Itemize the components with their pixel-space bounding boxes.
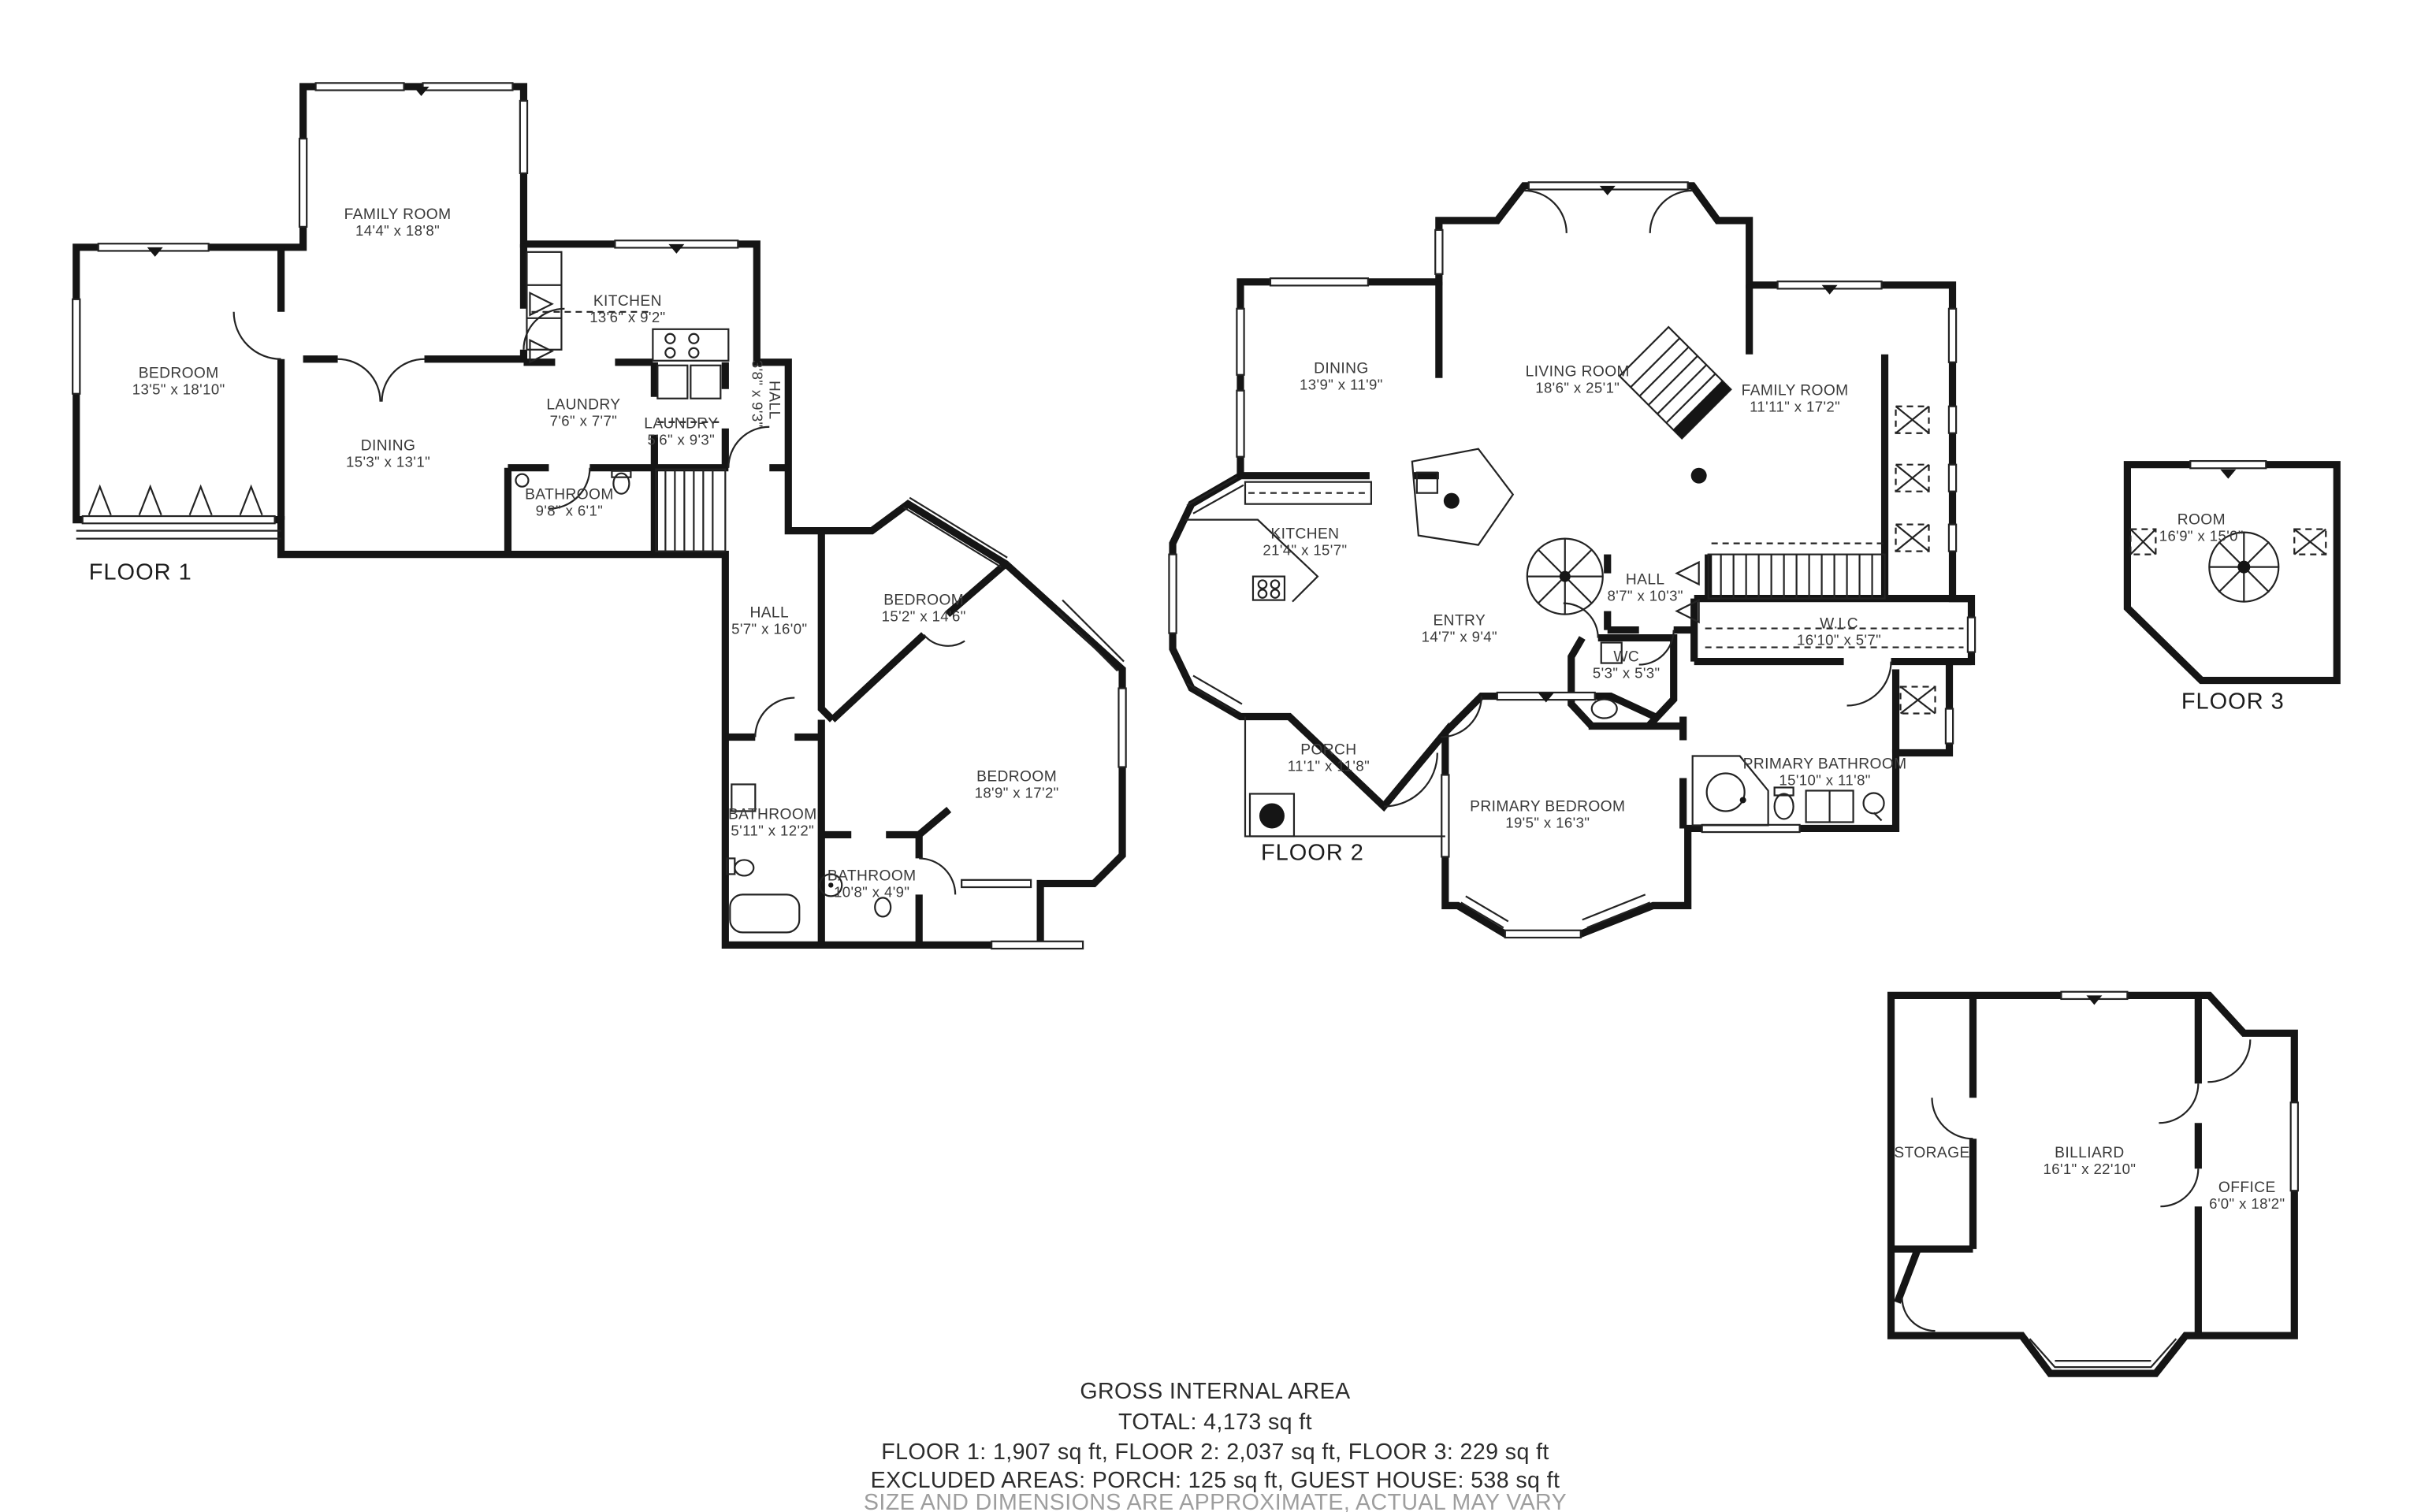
room-dims-kitchen2: 21'4" x 15'7" [1263, 542, 1347, 559]
bathtub-icon [730, 894, 799, 932]
room-label-kitchen: KITCHEN [593, 293, 662, 310]
room-dims-bedroom-c: 18'9" x 17'2" [975, 784, 1059, 801]
vanity-icon [1806, 790, 1854, 822]
staircase-icon [656, 470, 725, 552]
room-label-bathroom-a: BATHROOM [525, 487, 614, 503]
room-dims-family-room2: 11'11" x 17'2" [1750, 399, 1840, 415]
room-label-laundry-b: LAUNDRY [644, 416, 718, 433]
staircase-icon [1709, 544, 1885, 599]
round-sink-icon [1864, 793, 1884, 820]
room-label-wc: WC [1613, 649, 1639, 666]
guest-house-plan: STORAGE BILLIARD 16'1" x 22'10" OFFICE 6… [1891, 992, 2298, 1373]
room-dims-dining2: 13'9" x 11'9" [1300, 377, 1383, 393]
room-label-dining2: DINING [1314, 361, 1369, 377]
room-dims-bathroom-c: 10'8" x 4'9" [834, 883, 909, 900]
summary-floor-areas: FLOOR 1: 1,907 sq ft, FLOOR 2: 2,037 sq … [881, 1440, 1549, 1465]
closet-zigzag-icon [89, 487, 262, 515]
toilet-icon [612, 471, 630, 494]
room-dims-primary-bedroom: 19'5" x 16'3" [1505, 814, 1590, 830]
floor3-title: FLOOR 3 [2181, 689, 2285, 715]
stove-icon [653, 329, 728, 361]
room-dims-office: 6'0" x 18'2" [2209, 1195, 2285, 1212]
room-label-bathroom-b: BATHROOM [728, 806, 817, 823]
stove-icon [1253, 577, 1285, 600]
room-label-hall-b: HALL [749, 605, 789, 622]
sink-icon [515, 474, 528, 487]
room-dims-hall2: 8'7" x 10'3" [1608, 588, 1683, 604]
room-label-bedroom-c: BEDROOM [976, 768, 1057, 785]
kitchen-island-icon [1412, 449, 1513, 545]
room-label-living-room: LIVING ROOM [1526, 364, 1630, 381]
room-label-laundry-a: LAUNDRY [546, 397, 620, 414]
summary-disclaimer: SIZE AND DIMENSIONS ARE APPROXIMATE, ACT… [864, 1490, 1567, 1512]
washer-dryer-icon [657, 366, 720, 399]
toilet-icon [727, 858, 753, 875]
bay-window [2029, 1339, 2176, 1367]
room-dims-hall-a: 3'8" x 9'3" [749, 360, 765, 428]
floor1-title: FLOOR 1 [89, 560, 192, 585]
room-dims-bathroom-b: 5'11" x 12'2" [731, 822, 814, 838]
room-dims-laundry-a: 7'6" x 7'7" [550, 413, 618, 429]
room-label-room3: ROOM [2177, 512, 2226, 529]
room-label-family-room: FAMILY ROOM [344, 206, 452, 223]
room-label-wic: W.I.C [1820, 616, 1858, 633]
room-dims-family-room: 14'4" x 18'8" [355, 222, 440, 239]
floor3-outer-walls [2127, 465, 2337, 681]
room-label-bathroom-c: BATHROOM [827, 867, 917, 884]
room-dims-primary-bathroom: 15'10" x 11'8" [1779, 771, 1870, 788]
room-label-dining: DINING [361, 438, 416, 455]
room-dims-hall-b: 5'7" x 16'0" [731, 621, 807, 637]
room-label-bedroom-a: BEDROOM [139, 366, 219, 382]
toilet-icon [1775, 787, 1794, 819]
room-label-family-room2: FAMILY ROOM [1742, 383, 1849, 399]
room-label-entry: ENTRY [1433, 613, 1486, 630]
bifold-door-icon [530, 293, 552, 362]
room-dims-porch: 11'1" x 11'8" [1288, 757, 1370, 774]
toilet-icon [875, 897, 891, 916]
room-dims-billiard: 16'1" x 22'10" [2044, 1161, 2137, 1177]
room-dims-laundry-b: 5'6" x 9'3" [648, 432, 716, 448]
floor2-plan: DINING 13'9" x 11'9" LIVING ROOM 18'6" x… [1169, 182, 1975, 938]
room-label-hall2: HALL [1626, 572, 1665, 589]
room-dims-entry: 14'7" x 9'4" [1422, 629, 1497, 645]
room-label-porch: PORCH [1300, 742, 1356, 759]
floor3-windows [2190, 461, 2266, 479]
guest-house-room-labels: STORAGE BILLIARD 16'1" x 22'10" OFFICE 6… [1894, 1145, 2285, 1212]
room-dims-dining: 15'3" x 13'1" [346, 454, 430, 470]
floor1-plan: FAMILY ROOM 14'4" x 18'8" BEDROOM 13'5" … [73, 83, 1126, 949]
room-dims-living-room: 18'6" x 25'1" [1535, 380, 1620, 396]
room-label-bedroom-b: BEDROOM [883, 593, 964, 609]
room-dims-wic: 16'10" x 5'7" [1797, 632, 1881, 648]
room-label-office: OFFICE [2218, 1180, 2276, 1196]
room-label-primary-bedroom: PRIMARY BEDROOM [1470, 798, 1625, 815]
room-dims-bedroom-a: 13'5" x 18'10" [132, 381, 225, 398]
room-dims-bathroom-a: 9'8" x 6'1" [536, 503, 604, 519]
room-dims-room3: 16'9" x 15'0" [2159, 528, 2244, 544]
corner-fireplace-stair-icon [1620, 327, 1731, 438]
room-label-primary-bathroom: PRIMARY BATHROOM [1743, 756, 1907, 772]
room-label-storage: STORAGE [1894, 1145, 1969, 1161]
room-dims-wc: 5'3" x 5'3" [1593, 665, 1660, 682]
room-dims-bedroom-b: 15'2" x 14'6" [882, 608, 966, 625]
floor2-title: FLOOR 2 [1261, 840, 1364, 865]
room-dims-kitchen: 13'6" x 9'2" [589, 309, 665, 325]
summary-block: GROSS INTERNAL AREA TOTAL: 4,173 sq ft F… [864, 1379, 1567, 1512]
floor2-room-labels: DINING 13'9" x 11'9" LIVING ROOM 18'6" x… [1261, 361, 1907, 866]
porch-column-icon [1259, 803, 1285, 828]
summary-title: GROSS INTERNAL AREA [1080, 1379, 1350, 1404]
room-label-kitchen2: KITCHEN [1270, 526, 1339, 543]
room-label-billiard: BILLIARD [2055, 1145, 2125, 1161]
floorplan-image: FAMILY ROOM 14'4" x 18'8" BEDROOM 13'5" … [0, 0, 2421, 1512]
skylight-box-icon [1896, 407, 1936, 714]
ceiling-fan-dot [1691, 468, 1707, 484]
porch-outline [1245, 717, 1445, 837]
room-label-hall-a: HALL [765, 381, 782, 420]
floor3-plan: ROOM 16'9" x 15'0" FLOOR 3 [2127, 461, 2337, 714]
summary-total: TOTAL: 4,173 sq ft [1118, 1410, 1312, 1435]
